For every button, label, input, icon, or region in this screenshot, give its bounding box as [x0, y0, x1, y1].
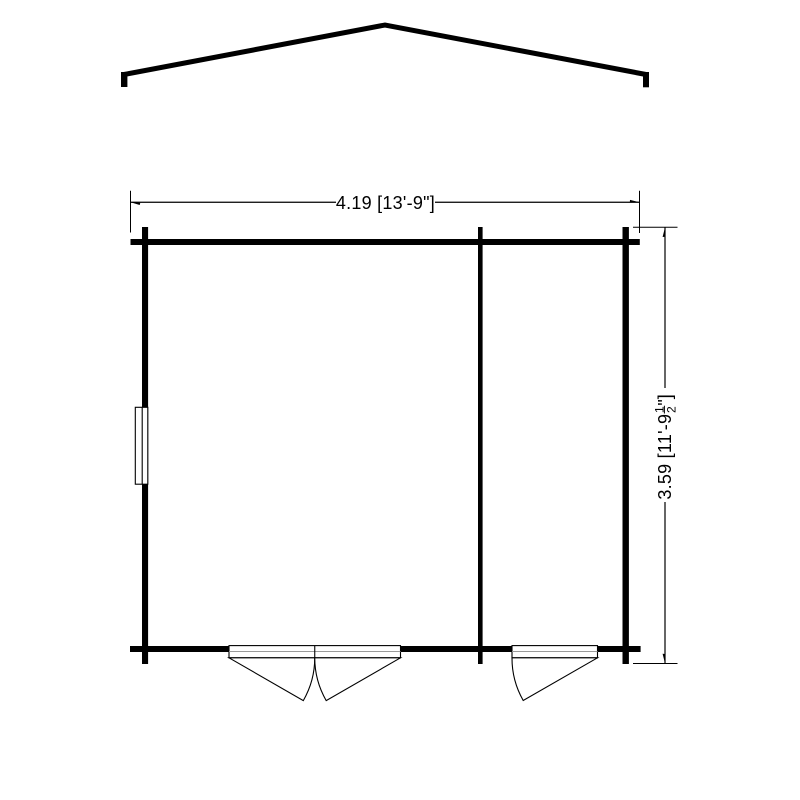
svg-text:2: 2 — [664, 406, 678, 413]
svg-text:4.19 [13'-9"]: 4.19 [13'-9"] — [336, 193, 435, 213]
svg-text:"]: "] — [655, 394, 675, 405]
svg-text:3.59 [11'-9: 3.59 [11'-9 — [655, 414, 675, 500]
